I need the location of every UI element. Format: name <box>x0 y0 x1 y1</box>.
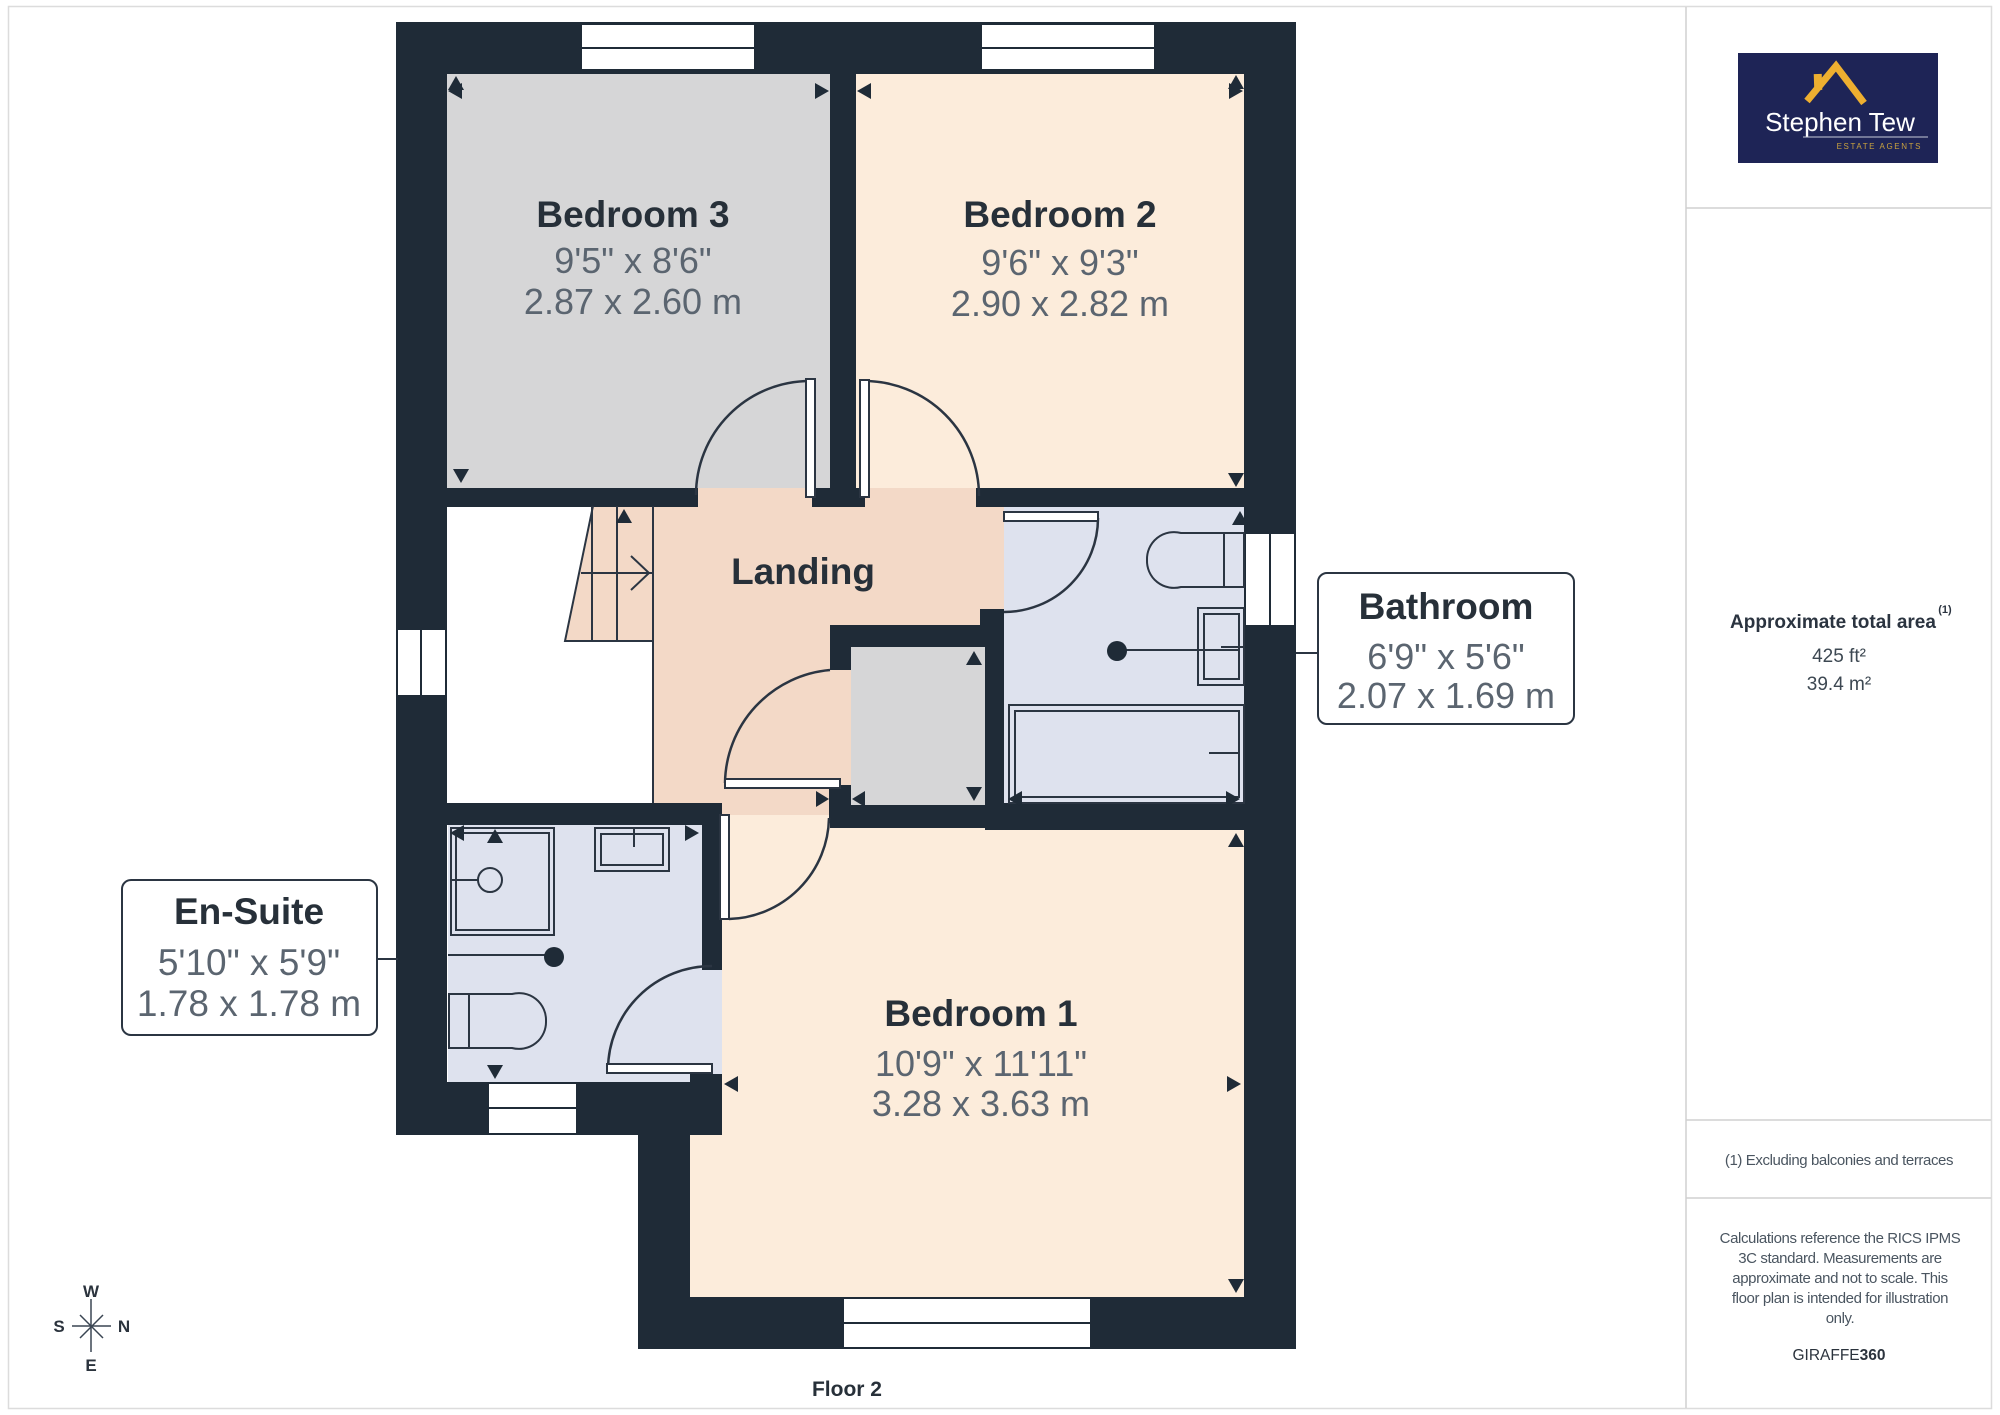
svg-text:Bedroom 3: Bedroom 3 <box>536 194 729 235</box>
svg-text:En-Suite: En-Suite <box>174 891 324 932</box>
svg-text:Landing: Landing <box>731 551 875 592</box>
svg-text:only.: only. <box>1826 1310 1855 1327</box>
svg-text:(1): (1) <box>1938 604 1952 616</box>
svg-text:3.28 x 3.63 m: 3.28 x 3.63 m <box>872 1083 1090 1124</box>
svg-text:E: E <box>85 1356 96 1375</box>
svg-text:10'9" x 11'11": 10'9" x 11'11" <box>875 1043 1087 1084</box>
svg-text:2.07 x 1.69 m: 2.07 x 1.69 m <box>1337 675 1555 716</box>
svg-text:2.87 x 2.60 m: 2.87 x 2.60 m <box>524 281 742 322</box>
svg-text:Bathroom: Bathroom <box>1359 586 1534 627</box>
svg-text:GIRAFFE360: GIRAFFE360 <box>1792 1347 1885 1364</box>
svg-text:Calculations reference the RIC: Calculations reference the RICS IPMS <box>1720 1230 1961 1247</box>
svg-text:1.78 x 1.78 m: 1.78 x 1.78 m <box>137 983 361 1024</box>
svg-text:(1) Excluding balconies and te: (1) Excluding balconies and terraces <box>1725 1152 1953 1169</box>
svg-text:ESTATE AGENTS: ESTATE AGENTS <box>1837 142 1922 151</box>
svg-text:9'5" x 8'6": 9'5" x 8'6" <box>554 240 711 281</box>
svg-text:5'10" x 5'9": 5'10" x 5'9" <box>158 942 340 983</box>
svg-text:S: S <box>53 1317 64 1336</box>
svg-text:6'9" x 5'6": 6'9" x 5'6" <box>1367 636 1524 677</box>
svg-text:approximate and not to scale.: approximate and not to scale. This <box>1732 1270 1947 1287</box>
svg-text:Floor 2: Floor 2 <box>812 1378 882 1401</box>
svg-text:Bedroom 1: Bedroom 1 <box>884 993 1077 1034</box>
svg-text:Bedroom 2: Bedroom 2 <box>963 194 1156 235</box>
svg-text:N: N <box>118 1317 130 1336</box>
svg-text:425 ft²: 425 ft² <box>1812 646 1866 667</box>
svg-text:2.90 x 2.82 m: 2.90 x 2.82 m <box>951 283 1169 324</box>
svg-text:39.4 m²: 39.4 m² <box>1807 674 1871 695</box>
svg-text:Approximate total area: Approximate total area <box>1730 612 1936 633</box>
svg-text:floor plan is intended for ill: floor plan is intended for illustration <box>1732 1290 1948 1307</box>
svg-text:3C standard. Measurements are: 3C standard. Measurements are <box>1738 1250 1942 1267</box>
svg-text:Stephen Tew: Stephen Tew <box>1765 107 1915 137</box>
svg-text:9'6" x 9'3": 9'6" x 9'3" <box>981 242 1138 283</box>
svg-text:W: W <box>83 1282 100 1301</box>
